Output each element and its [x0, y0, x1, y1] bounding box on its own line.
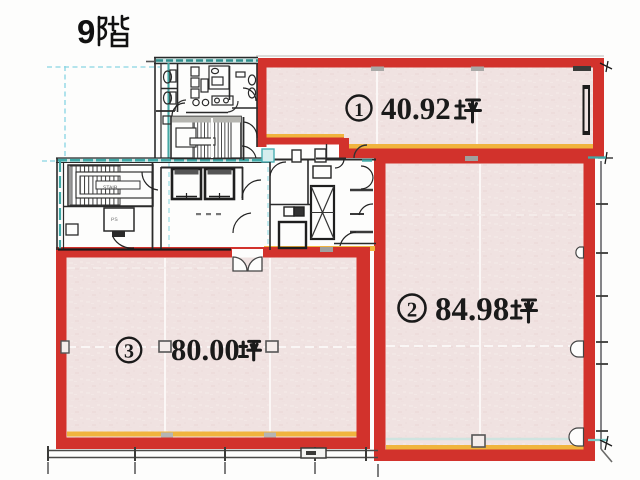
svg-text:2: 2: [407, 298, 418, 322]
svg-text:PS: PS: [111, 217, 118, 223]
svg-text:1: 1: [354, 100, 364, 121]
svg-text:84.98: 84.98: [435, 292, 509, 328]
svg-text:9: 9: [77, 13, 95, 50]
svg-text:STAIR: STAIR: [103, 185, 118, 191]
svg-text:40.92: 40.92: [381, 91, 451, 126]
svg-text:3: 3: [124, 341, 134, 363]
svg-text:80.00: 80.00: [171, 333, 240, 367]
